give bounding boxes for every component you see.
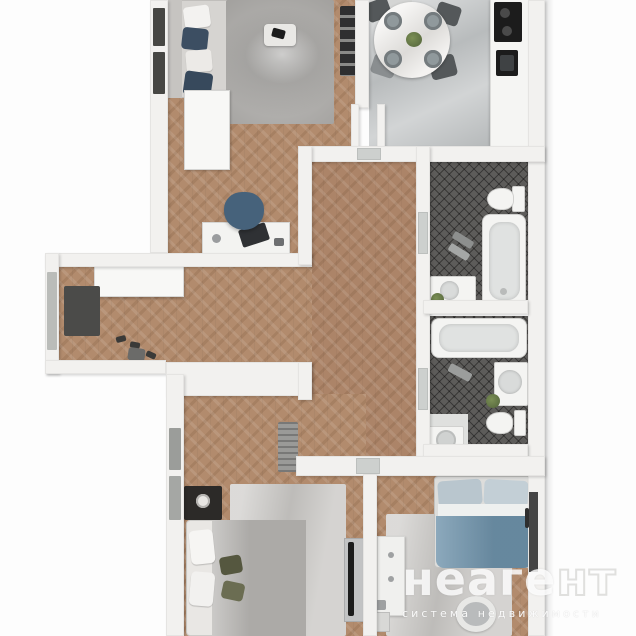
watermark-tagline: система недвижимости [402, 607, 617, 620]
wall-living-bottom [45, 253, 312, 267]
wall-south-band [296, 456, 545, 476]
watermark-brand: неагент [402, 556, 617, 602]
sofa-backrest [168, 0, 182, 98]
table-lamp [196, 494, 210, 508]
toilet [486, 412, 513, 434]
table-centerpiece-plant [406, 32, 422, 47]
wardrobe [184, 90, 230, 170]
window-living-room [153, 8, 165, 46]
cooktop-burner [502, 26, 512, 36]
toilet-tank [514, 410, 526, 436]
wall-bedrooms-divider [363, 474, 377, 636]
desk-item [274, 238, 284, 246]
floor-plan: неагент система недвижимости [0, 0, 636, 636]
watermark-brand-solid: неаге [402, 552, 556, 606]
tv [348, 542, 354, 616]
plate [424, 50, 442, 68]
door-bathroom-2 [418, 368, 428, 410]
door-bathroom-1 [418, 212, 428, 254]
bed-pillow [188, 529, 215, 565]
toilet [487, 188, 514, 210]
sofa-pillow [181, 27, 209, 52]
door-hall-bedrooms [356, 458, 380, 474]
plate [424, 12, 442, 30]
window-living-room [153, 52, 165, 94]
window-bedroom-1 [169, 428, 181, 470]
sink-basin [498, 370, 522, 394]
watermark-brand-outline: нт [556, 552, 616, 606]
dresser-handle [388, 576, 394, 582]
bathroom-plant [486, 394, 500, 408]
bed-pillow [189, 571, 216, 607]
wall-bathrooms-divider [423, 300, 528, 314]
desk-mug [212, 234, 221, 243]
dresser-handle [388, 552, 394, 558]
bed-cushion [219, 554, 244, 576]
window-bedroom-1 [169, 476, 181, 520]
wall-living-kitchen-divider [355, 0, 369, 108]
wall-wing-bottom [45, 360, 166, 374]
living-room-rug [226, 0, 334, 124]
entry-mat [64, 286, 100, 336]
door-kitchen-hall [357, 148, 381, 160]
office-chair [224, 192, 264, 230]
sofa-pillow [185, 49, 213, 73]
wall-bedroom-1-top [166, 362, 312, 396]
sofa-pillow [183, 4, 212, 29]
window-entry-wing [47, 272, 57, 350]
plate [384, 12, 402, 30]
plan-shadow [545, 0, 554, 636]
bathtub-basin [439, 324, 519, 352]
watermark: неагент система недвижимости [402, 556, 617, 620]
bed-pillow [483, 479, 528, 507]
radiator [278, 422, 298, 472]
entry-wardrobe [94, 265, 184, 297]
cooktop-burner [500, 8, 510, 18]
bathtub-drain [500, 288, 507, 295]
plate [384, 50, 402, 68]
wall-hall-left-lower [298, 362, 312, 400]
kitchen-sink-basin [500, 55, 514, 71]
balcony-door-handle [525, 508, 529, 528]
bed-blanket [212, 520, 306, 636]
wall-hall-left-upper [298, 146, 312, 265]
